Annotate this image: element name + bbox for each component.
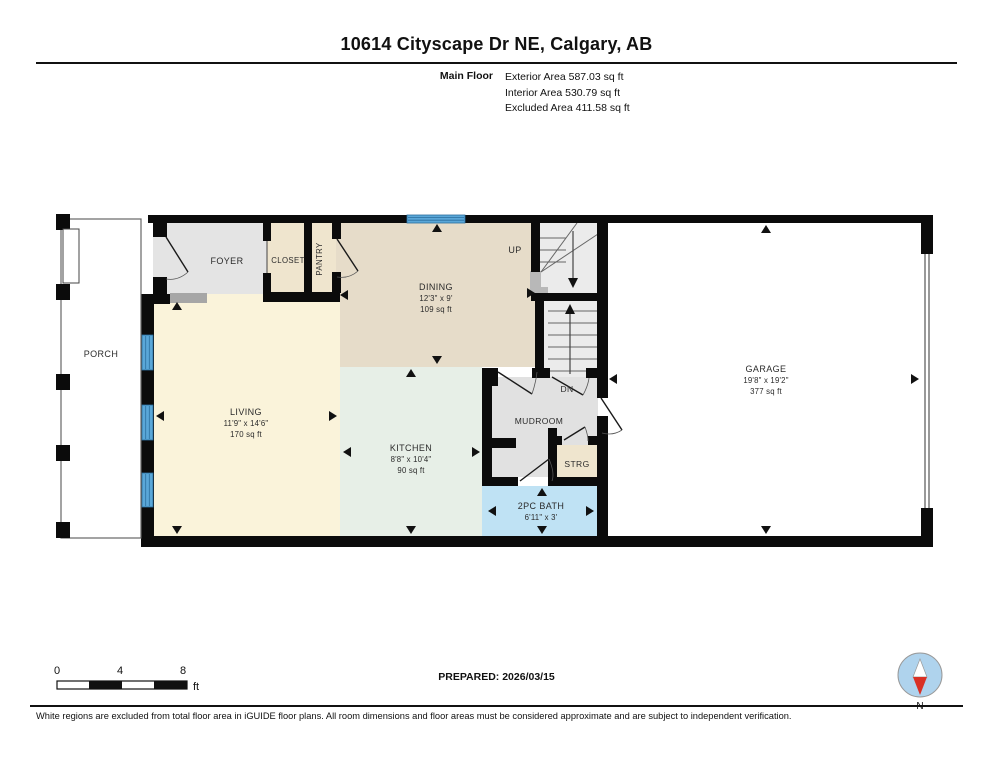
footer-divider [30, 705, 963, 707]
kitchen-dims: 8'8" x 10'4" [391, 455, 432, 464]
disclaimer-text: White regions are excluded from total fl… [36, 711, 792, 721]
porch-post [56, 445, 70, 461]
living-label: LIVING [230, 407, 262, 417]
garage-area: 377 sq ft [750, 387, 782, 396]
garage-door [925, 254, 929, 508]
porch-structure [56, 214, 141, 538]
garage-label: GARAGE [746, 364, 787, 374]
porch-post [56, 214, 70, 230]
stairs-down-label: DN [560, 384, 573, 394]
window [142, 473, 153, 507]
kitchen-label: KITCHEN [390, 443, 432, 453]
mudroom-label: MUDROOM [515, 416, 564, 426]
bath-dims: 6'11" x 3' [525, 513, 558, 522]
porch-post [56, 522, 70, 538]
stairs-up-label: UP [508, 245, 521, 255]
floorplan-drawing: PORCH FOYER CLOSET PANTRY UP DN DINING 1… [0, 0, 993, 768]
porch-step [63, 229, 79, 283]
porch-post [56, 284, 70, 300]
dining-area: 109 sq ft [420, 305, 452, 314]
storage-label: STRG [564, 459, 589, 469]
pantry-label: PANTRY [315, 242, 324, 276]
window [142, 335, 153, 370]
kitchen-area: 90 sq ft [397, 466, 425, 475]
dining-dims: 12'3" x 9' [419, 294, 453, 303]
garage-dims: 19'8" x 19'2" [743, 376, 788, 385]
stairs-up-floor [537, 222, 599, 293]
porch-label: PORCH [84, 349, 119, 359]
living-dims: 11'9" x 14'6" [224, 419, 269, 428]
bath-label: 2PC BATH [518, 501, 565, 511]
foyer-label: FOYER [210, 256, 243, 266]
dining-label: DINING [419, 282, 453, 292]
prepared-date: PREPARED: 2026/03/15 [0, 671, 993, 683]
floorplan-page: 10614 Cityscape Dr NE, Calgary, AB Main … [0, 0, 993, 768]
porch-post [56, 374, 70, 390]
living-area: 170 sq ft [230, 430, 262, 439]
entry-step [170, 293, 207, 303]
window [407, 215, 465, 223]
window [142, 405, 153, 440]
closet-label: CLOSET [271, 256, 305, 265]
